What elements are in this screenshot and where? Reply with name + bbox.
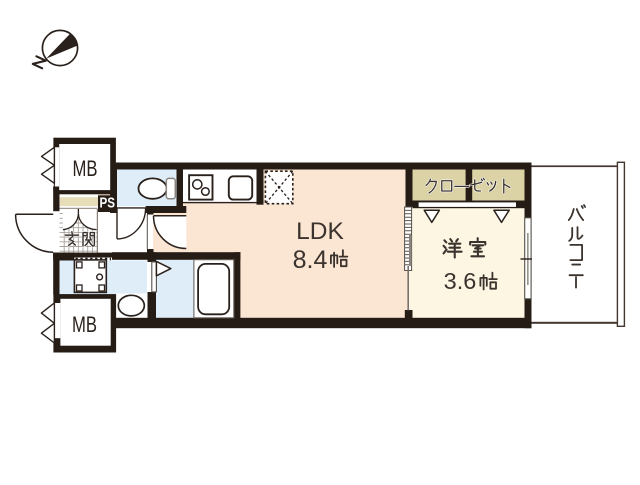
svg-text:3.6: 3.6 <box>444 268 477 294</box>
svg-text:MB: MB <box>73 156 98 181</box>
svg-text:MB: MB <box>72 312 97 337</box>
svg-text:PS: PS <box>100 195 116 212</box>
svg-text:8.4: 8.4 <box>293 246 328 274</box>
svg-text:LDK: LDK <box>296 218 344 245</box>
